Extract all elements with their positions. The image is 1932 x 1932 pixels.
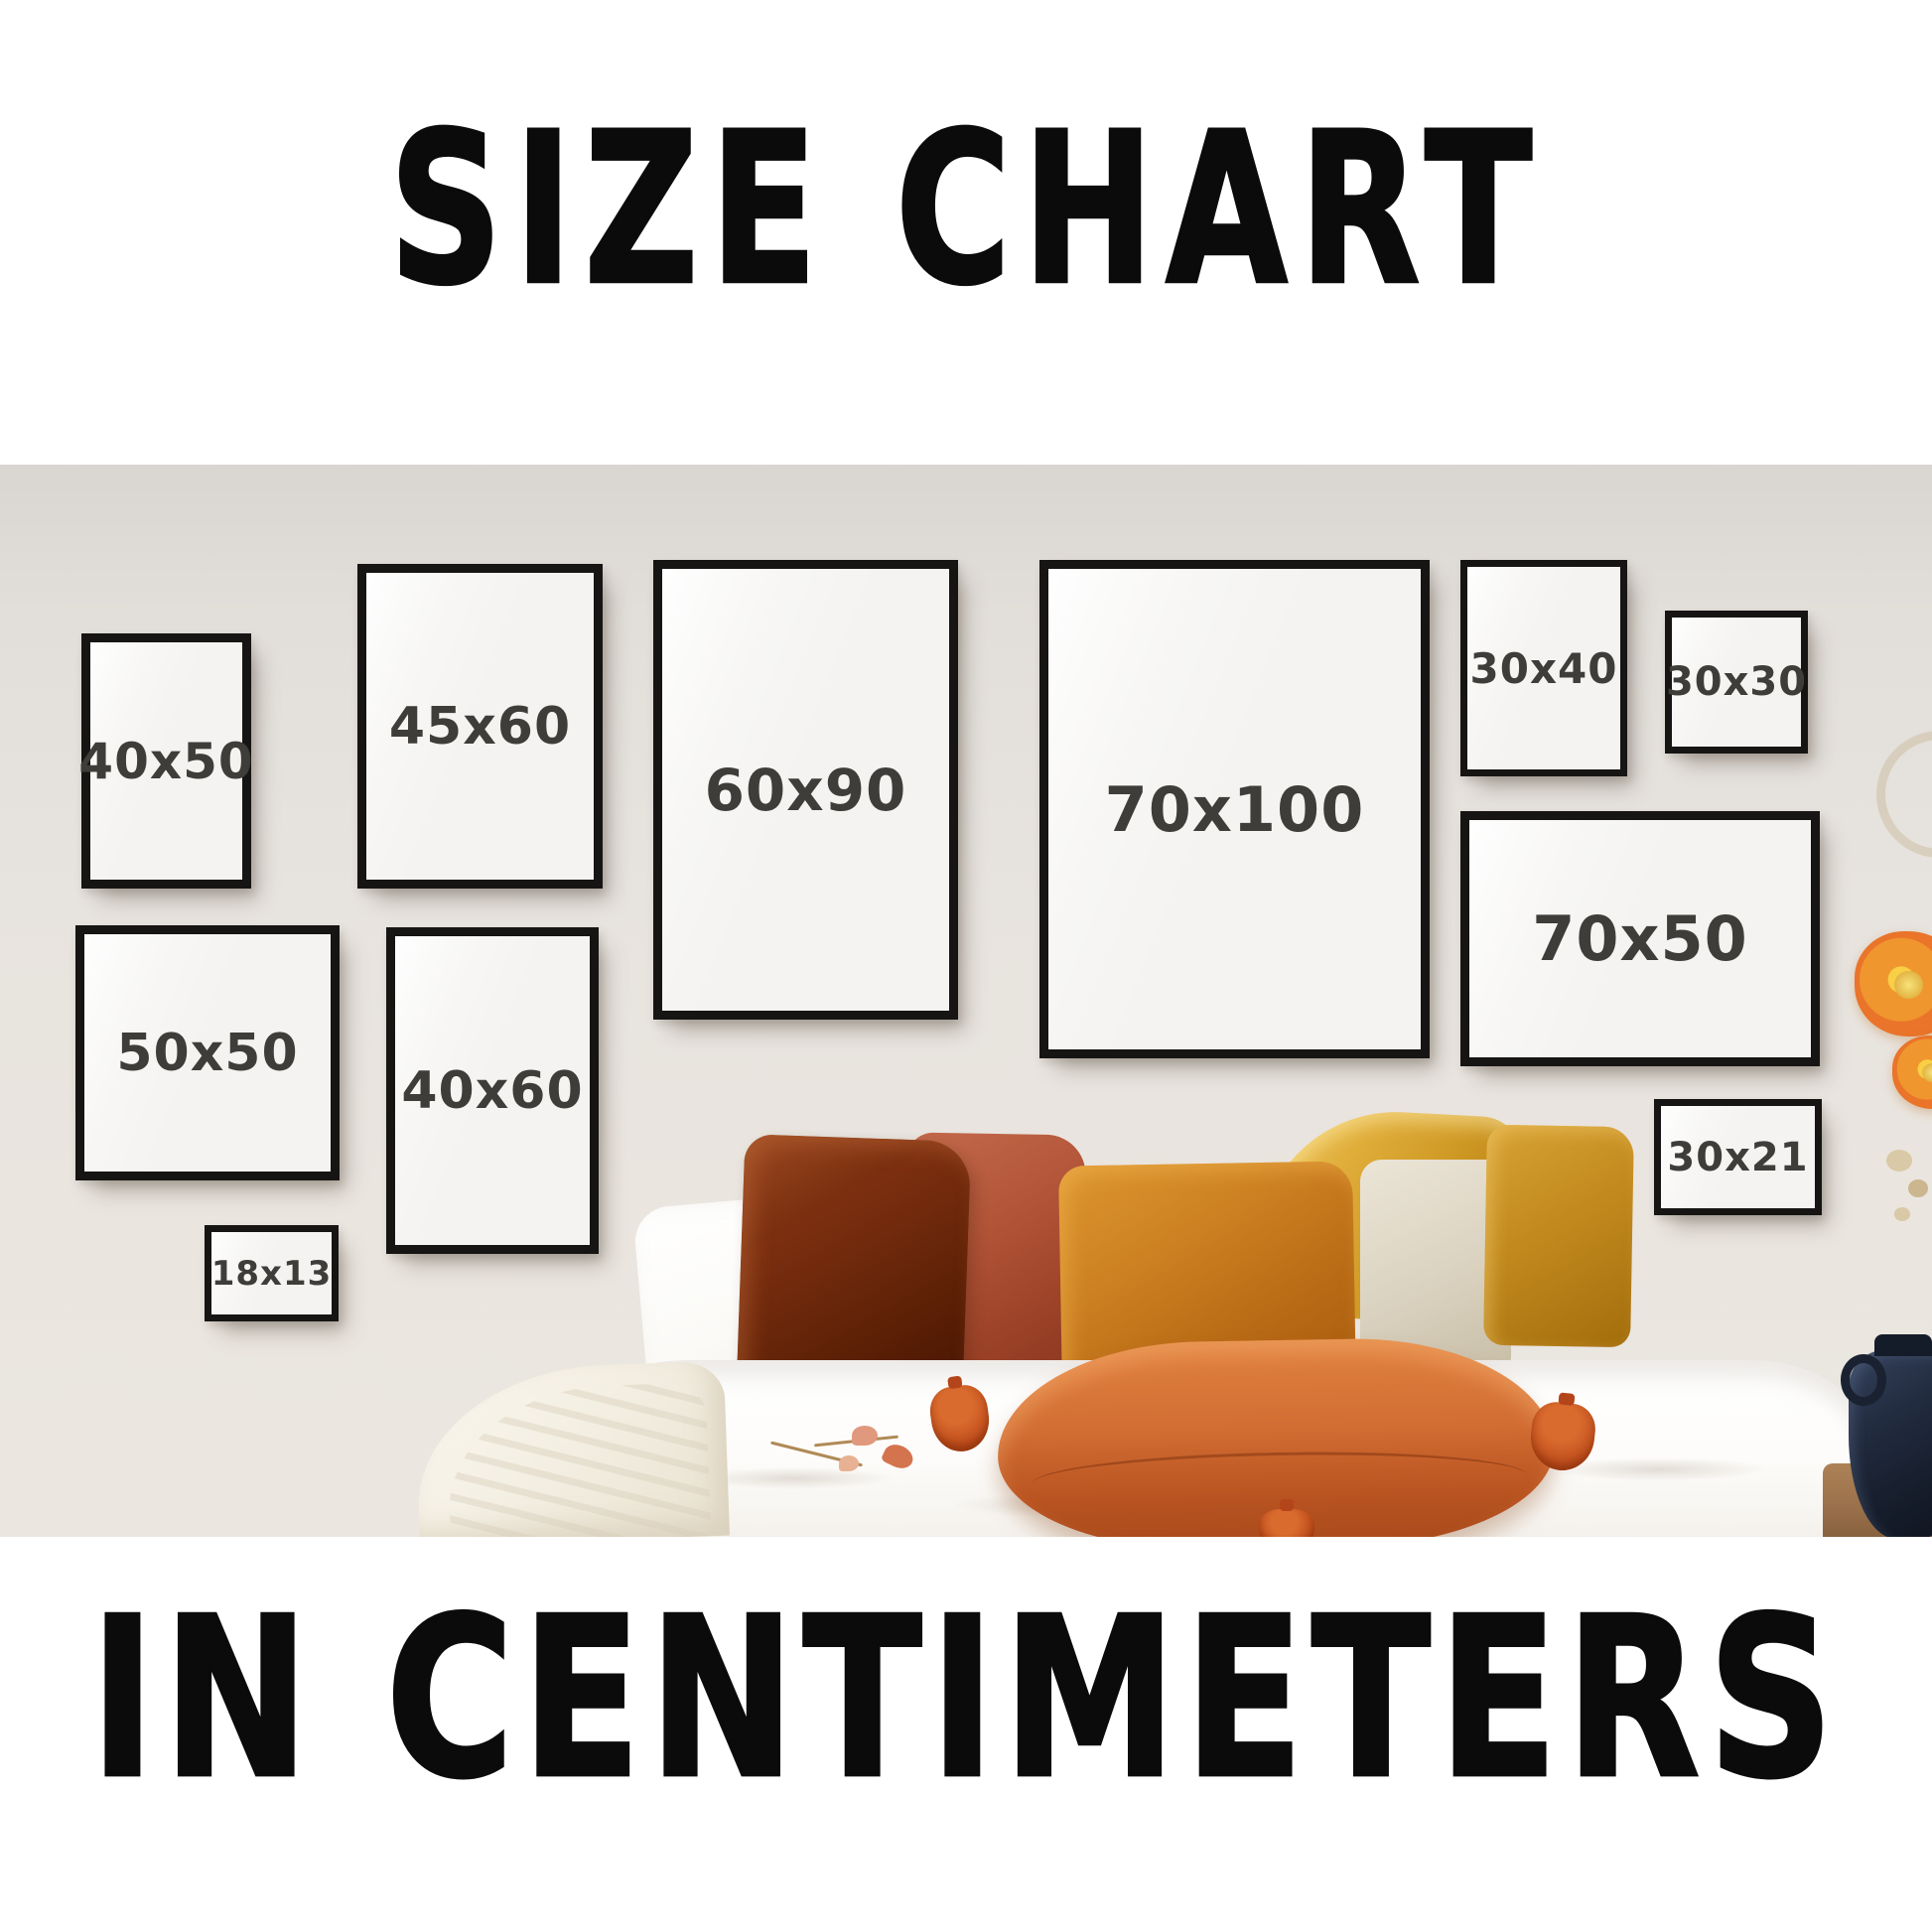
- flower-icon: [1855, 931, 1932, 1036]
- throw-blanket: [414, 1361, 730, 1537]
- bedroom-wall-photo: 40x50 45x60 60x90 70x100 30x40 30x30 70x…: [0, 465, 1932, 1537]
- frame-size-label: 60x90: [705, 757, 907, 824]
- poster-title-bottom: IN CENTIMETERS: [90, 1589, 1842, 1810]
- dried-flower-decoration: [1886, 1150, 1912, 1172]
- frame-size-label: 40x50: [78, 733, 253, 790]
- dried-flower-decoration: [1908, 1179, 1928, 1197]
- frame-size-label: 18x13: [211, 1254, 333, 1294]
- frame-size-label: 30x40: [1470, 644, 1618, 693]
- frame-30x40: 30x40: [1460, 560, 1627, 776]
- flower-center-icon: [1894, 971, 1923, 999]
- frame-40x60: 40x60: [386, 927, 599, 1254]
- pillow-dark-rust: [737, 1134, 972, 1396]
- frame-size-label: 30x30: [1666, 659, 1807, 705]
- frame-45x60: 45x60: [357, 564, 603, 889]
- frame-size-label: 45x60: [389, 697, 571, 757]
- pillow-mustard: [1483, 1125, 1634, 1348]
- poster-title-top: SIZE CHART: [389, 105, 1544, 314]
- frame-size-label: 30x21: [1667, 1135, 1808, 1180]
- frame-40x50: 40x50: [81, 633, 251, 889]
- bottom-title-band: IN CENTIMETERS: [0, 1537, 1932, 1932]
- frame-70x50: 70x50: [1460, 811, 1820, 1066]
- flower-center-icon: [1922, 1063, 1932, 1082]
- dried-flower-decoration: [1894, 1207, 1910, 1221]
- dried-sprig-flower: [852, 1426, 878, 1446]
- size-chart-poster: SIZE CHART 40x50 45x60 60x90 70x100 30x4…: [0, 0, 1932, 1932]
- frame-30x30: 30x30: [1665, 611, 1808, 754]
- front-orange-pillow: [996, 1335, 1556, 1537]
- top-title-band: SIZE CHART: [0, 0, 1932, 465]
- frame-size-label: 40x60: [401, 1061, 583, 1121]
- flower-icon: [1892, 1035, 1932, 1109]
- frame-size-label: 70x50: [1532, 902, 1748, 975]
- wreath-decoration: [1876, 731, 1932, 858]
- frame-size-label: 50x50: [116, 1024, 298, 1083]
- frame-30x21: 30x21: [1654, 1099, 1822, 1215]
- frame-size-label: 70x100: [1105, 773, 1365, 846]
- frame-70x100: 70x100: [1039, 560, 1430, 1058]
- tassel: [1259, 1509, 1314, 1537]
- frame-18x13: 18x13: [205, 1225, 339, 1321]
- frame-60x90: 60x90: [653, 560, 958, 1020]
- frame-50x50: 50x50: [75, 925, 340, 1180]
- dried-sprig-flower: [839, 1455, 859, 1471]
